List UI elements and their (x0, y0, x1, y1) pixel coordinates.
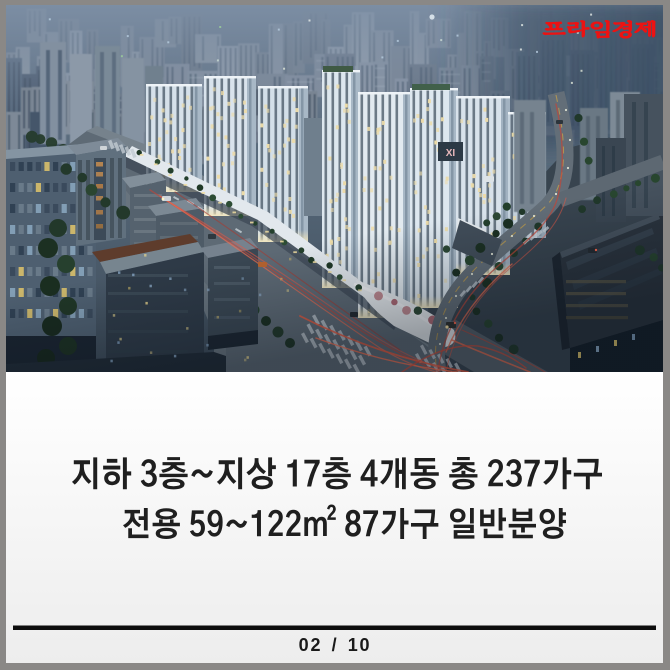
svg-text:02 / 10: 02 / 10 (299, 635, 372, 655)
